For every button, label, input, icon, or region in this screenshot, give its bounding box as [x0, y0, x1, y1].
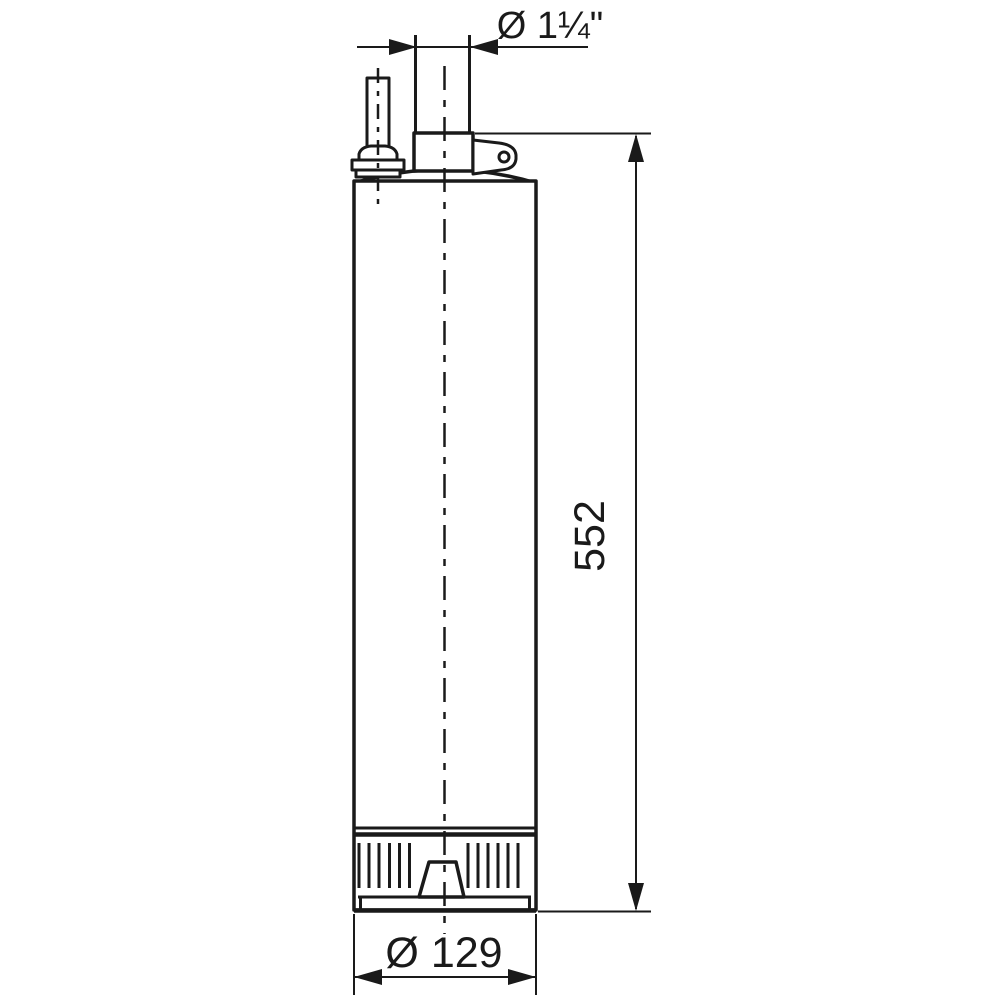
discharge-pipe	[416, 35, 470, 133]
dimension-top-diameter: Ø 1¼"	[357, 5, 603, 55]
discharge-pipe-fill	[416, 35, 468, 133]
height-label: 552	[566, 500, 614, 572]
arrow-left-icon	[389, 39, 417, 55]
carry-handle-bracket	[473, 140, 516, 174]
bottom-diameter-label: Ø 129	[385, 929, 502, 977]
arrow-right-icon	[508, 969, 536, 985]
drawing-canvas: Ø 1¼" 552 Ø 129	[0, 0, 1000, 1000]
arrow-right-icon	[470, 39, 498, 55]
bracket-hole	[499, 152, 509, 162]
pump-dimension-drawing: Ø 1¼" 552 Ø 129	[0, 0, 1000, 1000]
arrow-up-icon	[628, 134, 644, 162]
dimension-bottom-diameter: Ø 129	[354, 914, 536, 995]
gland-flange-lower	[356, 170, 400, 177]
suction-inlet-cone	[419, 862, 464, 897]
arrow-down-icon	[628, 883, 644, 911]
arrow-left-icon	[354, 969, 382, 985]
top-diameter-label: Ø 1¼"	[497, 5, 603, 47]
